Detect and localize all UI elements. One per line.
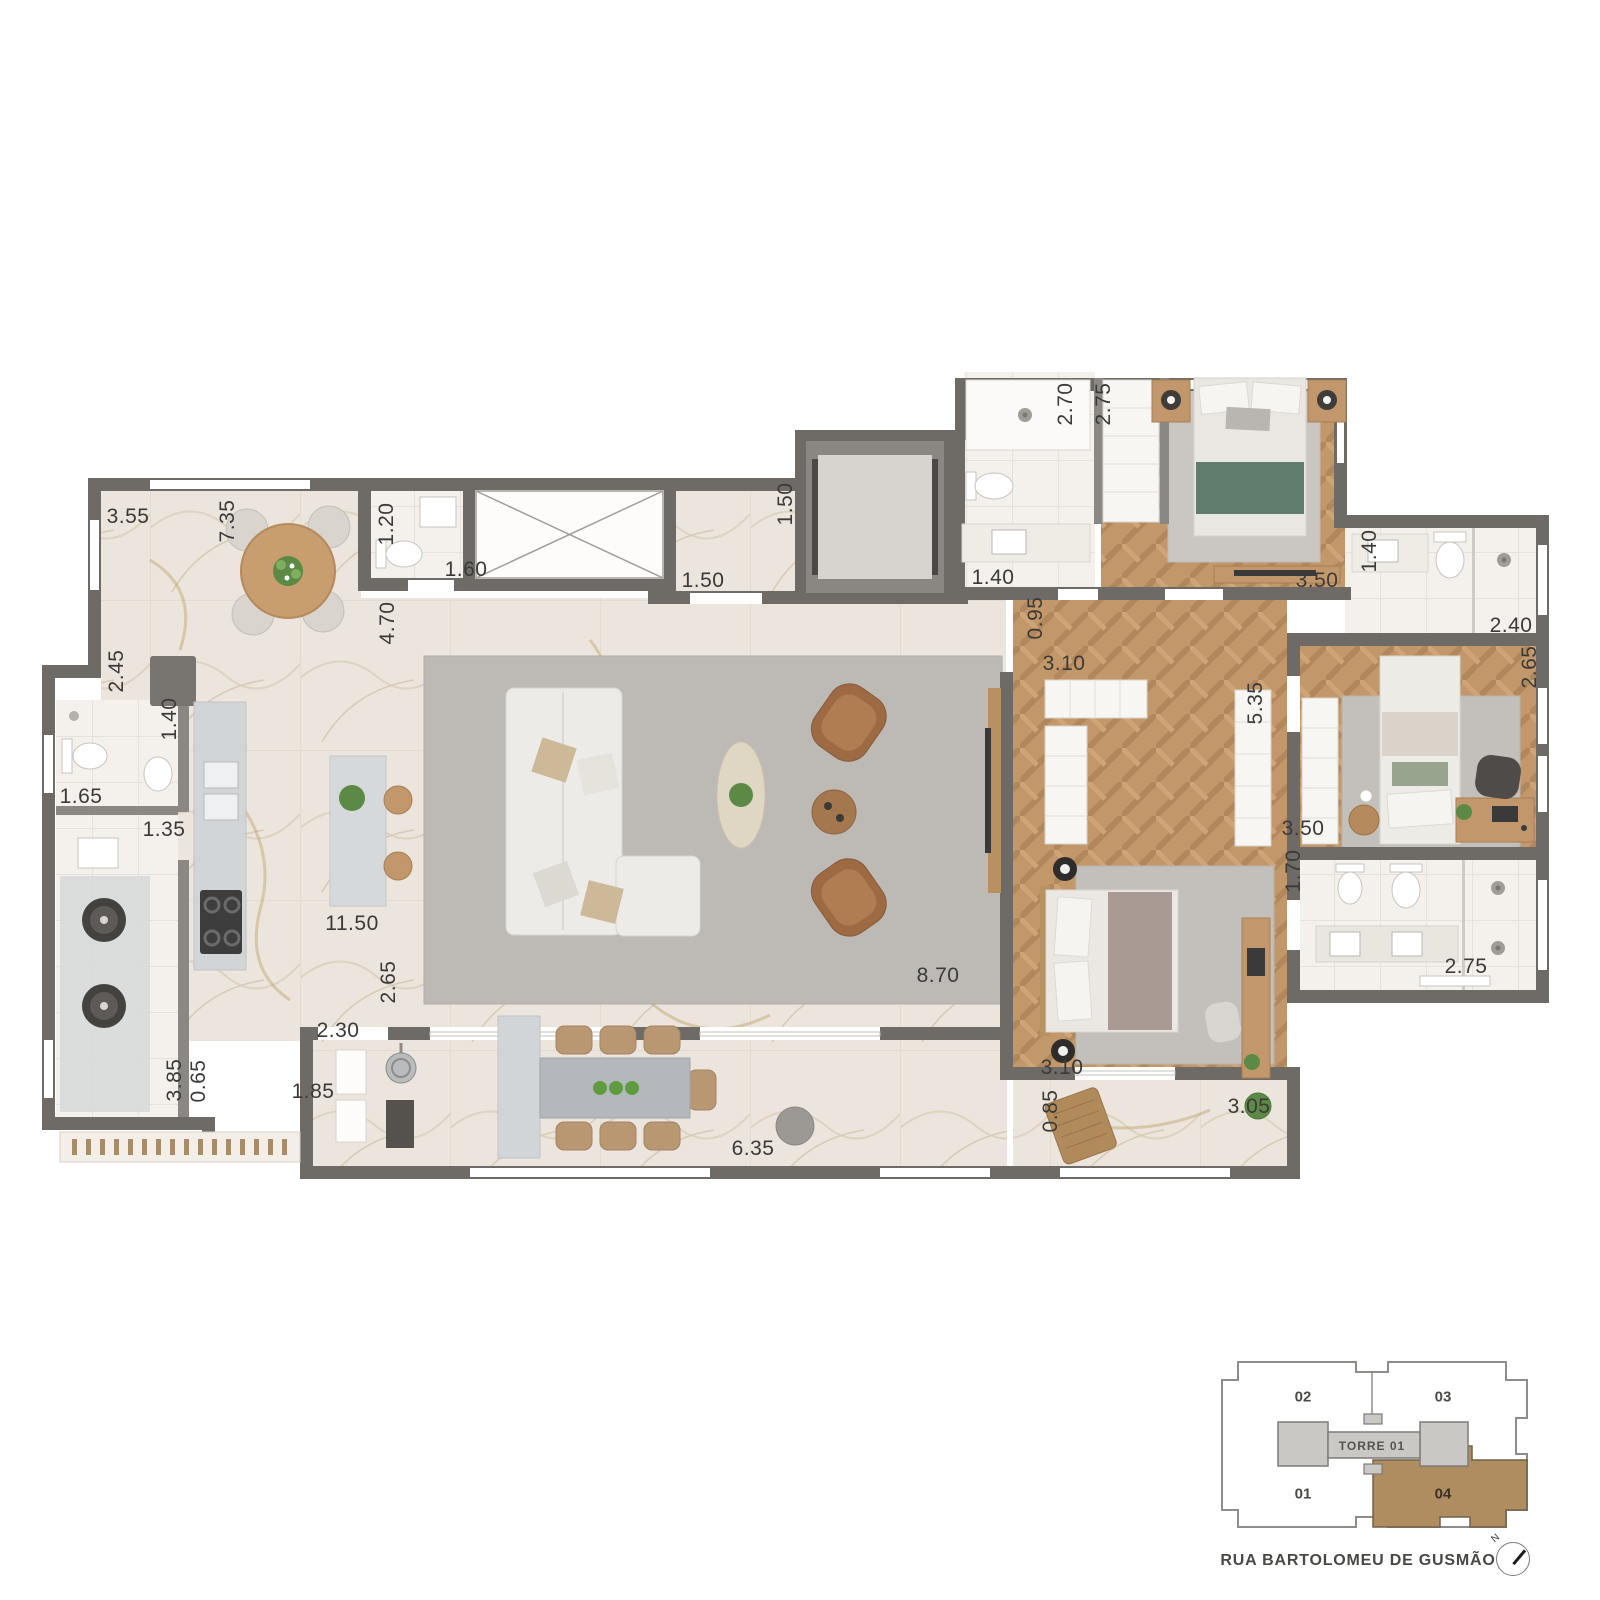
floor-plan-page: { "plan": { "street_label": "RUA BARTOLO… <box>0 0 1600 1600</box>
street-label: RUA BARTOLOMEU DE GUSMÃO <box>1220 1552 1495 1570</box>
key-plan <box>0 0 1600 1600</box>
compass: N <box>1494 1538 1532 1576</box>
tower-label: TORRE 01 <box>1339 1439 1405 1453</box>
compass-circle-icon <box>1496 1542 1530 1576</box>
